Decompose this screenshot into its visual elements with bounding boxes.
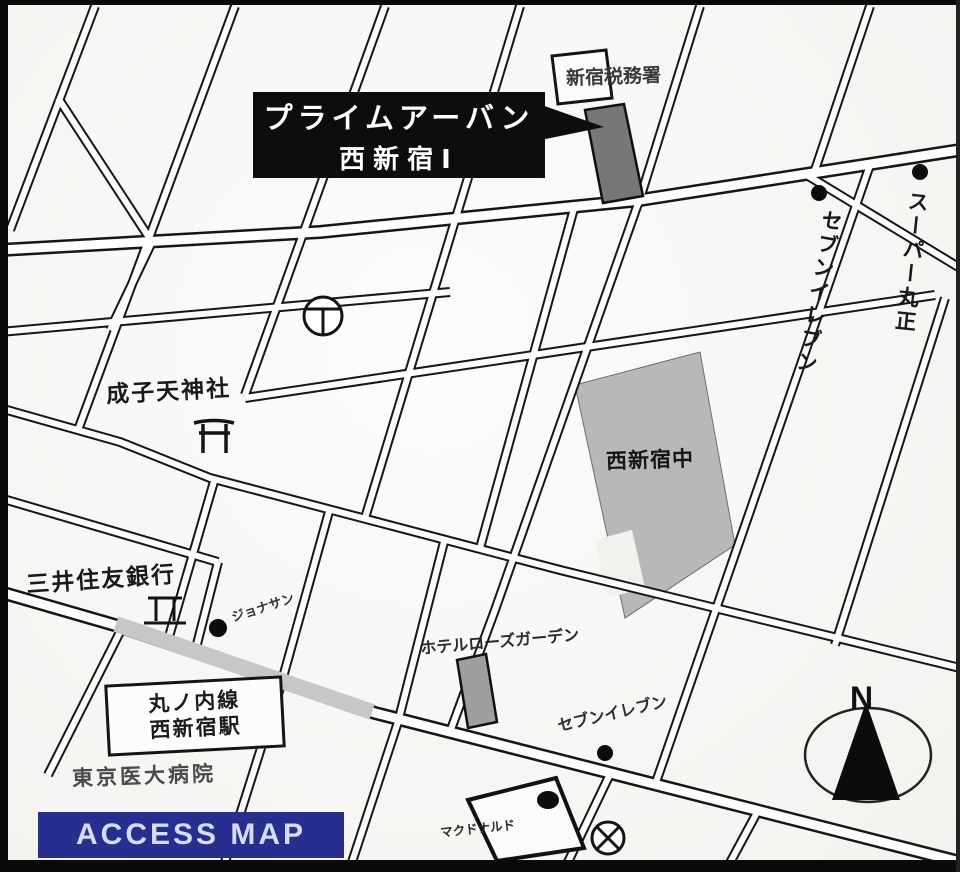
torii-icon [194, 421, 234, 454]
label-nishi-shinjuku-school: 西新宿中 [606, 442, 695, 475]
poi-dot-jonathans [209, 619, 227, 637]
access-map-title: ACCESS MAP [76, 818, 306, 852]
property-name: プライムアーバン [264, 95, 535, 137]
north-arrow-icon [805, 702, 931, 802]
property-callout: プライムアーバン 西新宿Ⅰ [253, 92, 545, 178]
road-segment-inner [365, 6, 520, 518]
poi-dot-super-marusho [912, 164, 928, 180]
road-segment-inner [352, 722, 398, 862]
map-stage: プライムアーバン 西新宿Ⅰ 新宿税務署 セブンイレブン スーパー丸正 成子天神社… [0, 0, 960, 872]
compass-north-label: N [850, 680, 873, 717]
map-border-bottom [0, 860, 960, 872]
station-name-label: 西新宿駅 [149, 714, 242, 745]
road-segment-inner [10, 6, 95, 230]
station-box: 丸ノ内線 西新宿駅 [104, 675, 286, 756]
road-segment-inner [398, 538, 445, 722]
utility-icon [304, 297, 342, 335]
road-segment-inner [815, 6, 870, 170]
prime-urban-building [585, 104, 643, 203]
hotel-rose-garden-building [457, 654, 497, 728]
road-segment-inner [78, 6, 235, 430]
map-border-right [956, 0, 960, 872]
road-segment-inner [245, 6, 385, 395]
road-segment-inner [0, 498, 218, 562]
road-segment-inner [480, 205, 575, 548]
police-box-icon [592, 822, 624, 854]
label-naruko-shrine: 成子天神社 [105, 369, 232, 409]
access-map-banner: ACCESS MAP [38, 812, 344, 858]
access-map: プライムアーバン 西新宿Ⅰ 新宿税務署 セブンイレブン スーパー丸正 成子天神社… [0, 0, 960, 872]
property-name-line2: 西新宿Ⅰ [339, 139, 459, 176]
poi-dot-seven-eleven-right [811, 185, 827, 201]
label-tokyo-medical-hospital: 東京医大病院 [72, 757, 217, 792]
poi-dot-seven-eleven-bottom [597, 745, 613, 761]
road-segment-inner [638, 6, 700, 205]
poi-dot-mcdonalds [537, 791, 559, 809]
road-segment-inner [0, 292, 450, 332]
map-border-left [0, 0, 8, 872]
map-border-top [0, 0, 960, 5]
label-tax-office: 新宿税務署 [566, 60, 662, 90]
road-segment-inner [58, 98, 152, 242]
